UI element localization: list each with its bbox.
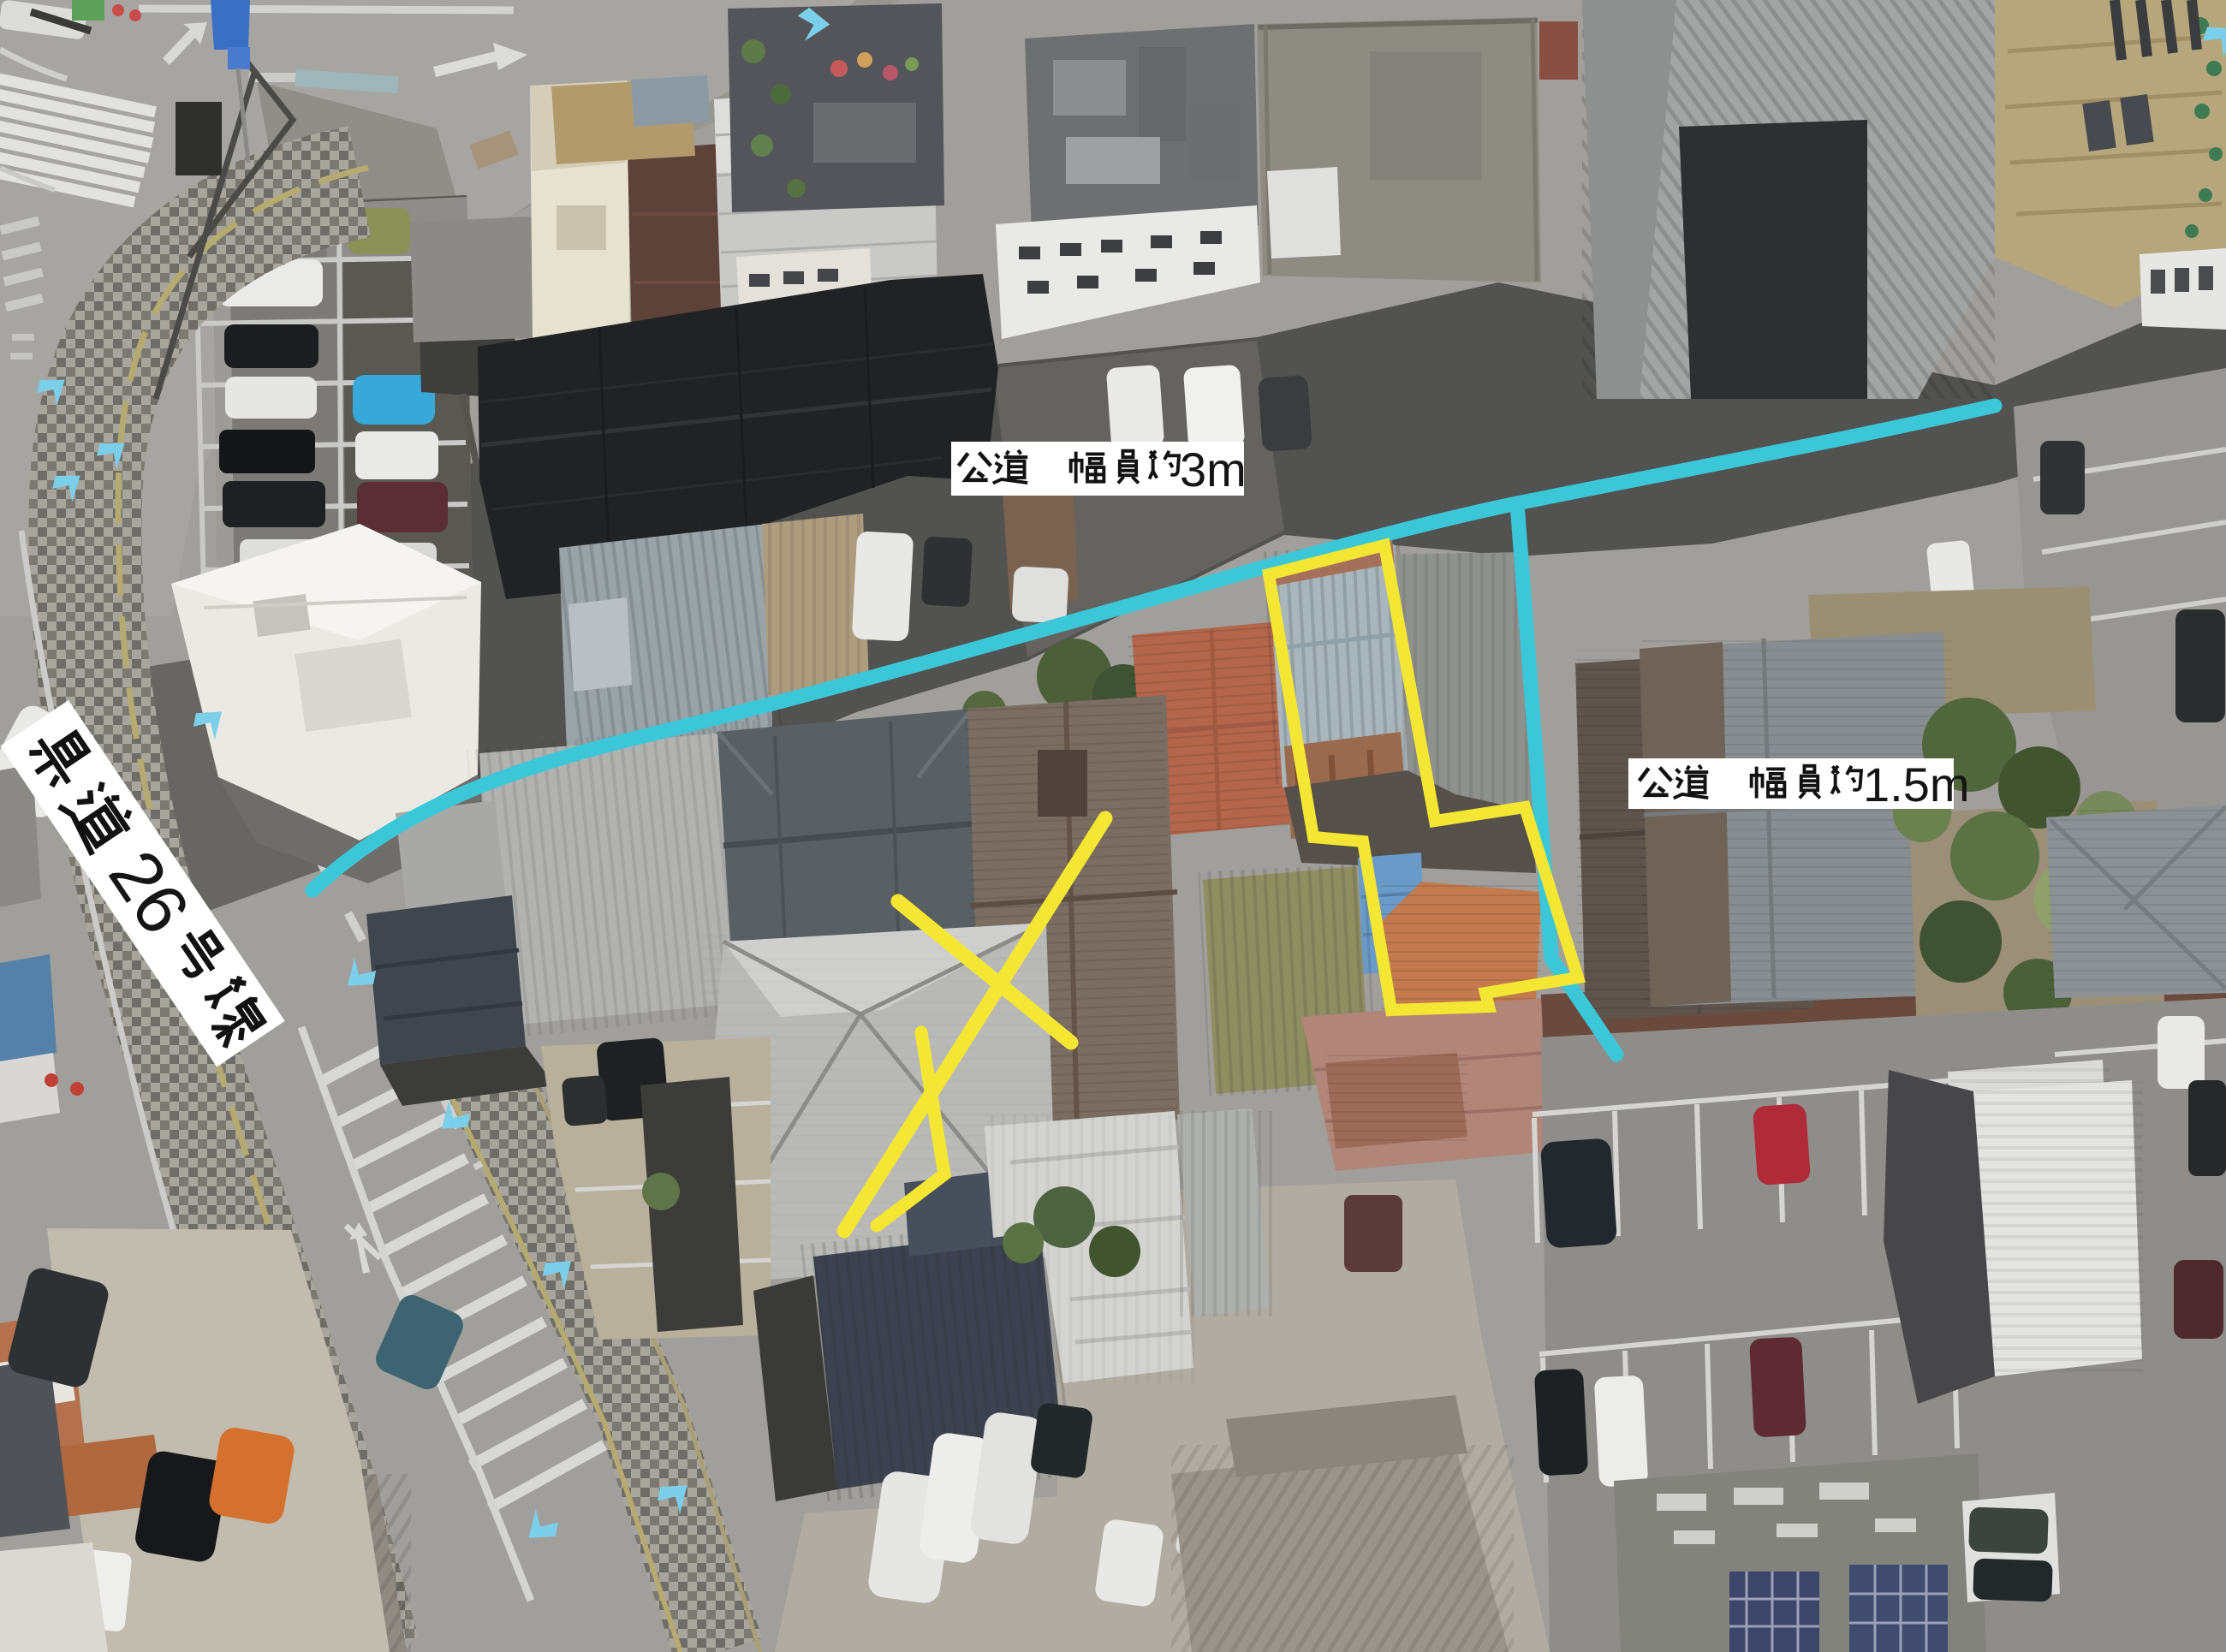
- svg-text:1.5m: 1.5m: [1863, 758, 1970, 811]
- svg-text:3m: 3m: [1180, 443, 1247, 496]
